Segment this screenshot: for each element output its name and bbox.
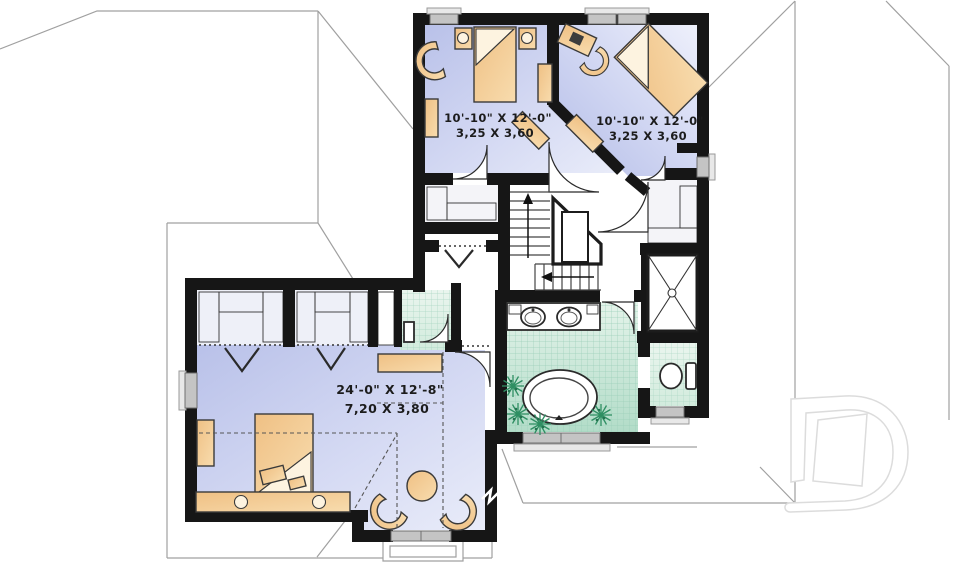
dresser-icon (197, 420, 214, 466)
bathtub-icon (523, 370, 597, 424)
floor-plan-page: 10'-10" X 12'-0" 3,25 X 3,60 10'-10" X 1… (0, 0, 960, 569)
window-bedroom-right-2 (618, 14, 646, 24)
closet1-floor (425, 185, 498, 222)
floor-plan-drawing: 10'-10" X 12'-0" 3,25 X 3,60 10'-10" X 1… (0, 0, 960, 569)
linen-shelf-floor (378, 290, 394, 345)
closet-b-floor (295, 290, 368, 345)
bed-icon (474, 27, 516, 102)
dresser-ic (378, 354, 442, 372)
sink-icon (521, 308, 545, 327)
utility-box-icon (404, 322, 414, 342)
window-toilet-nook (656, 407, 684, 417)
window-bedroom-right-1 (588, 14, 616, 24)
window-master-left (185, 373, 197, 408)
bedroom-right-dim-metric: 3,25 X 3,60 (609, 129, 687, 143)
bifold-closet-doors (445, 250, 473, 267)
bed-icon (255, 414, 313, 494)
master-dim-metric: 7,20 X 3,80 (345, 401, 429, 416)
attic-xbox (648, 255, 697, 331)
headboard-credenza-icon (196, 492, 350, 512)
window-bedroom-left (430, 14, 458, 24)
stair-inner-rail (562, 212, 588, 262)
dresser-icon (538, 64, 552, 102)
stair-arrow-left-icon (541, 272, 594, 282)
master-dim-imperial: 24'-0" X 12'-8" (336, 382, 444, 397)
sink-icon (557, 308, 581, 327)
closet-a-floor (197, 290, 283, 345)
toilet-icon (660, 363, 696, 389)
bedroom-left-dim-imperial: 10'-10" X 12'-0" (444, 111, 552, 125)
bedroom-right-dim-imperial: 10'-10" X 12'-0" (596, 114, 704, 128)
dresser-icon (425, 99, 438, 137)
bedroom-left-dim-metric: 3,25 X 3,60 (456, 126, 534, 140)
staircase (510, 192, 601, 290)
stair-arrow-up-icon (523, 193, 533, 258)
table-icon (407, 471, 437, 501)
window-bedroom-right-side (697, 157, 709, 177)
closet2-floor (648, 180, 697, 243)
watermark-d-logo (785, 396, 908, 512)
